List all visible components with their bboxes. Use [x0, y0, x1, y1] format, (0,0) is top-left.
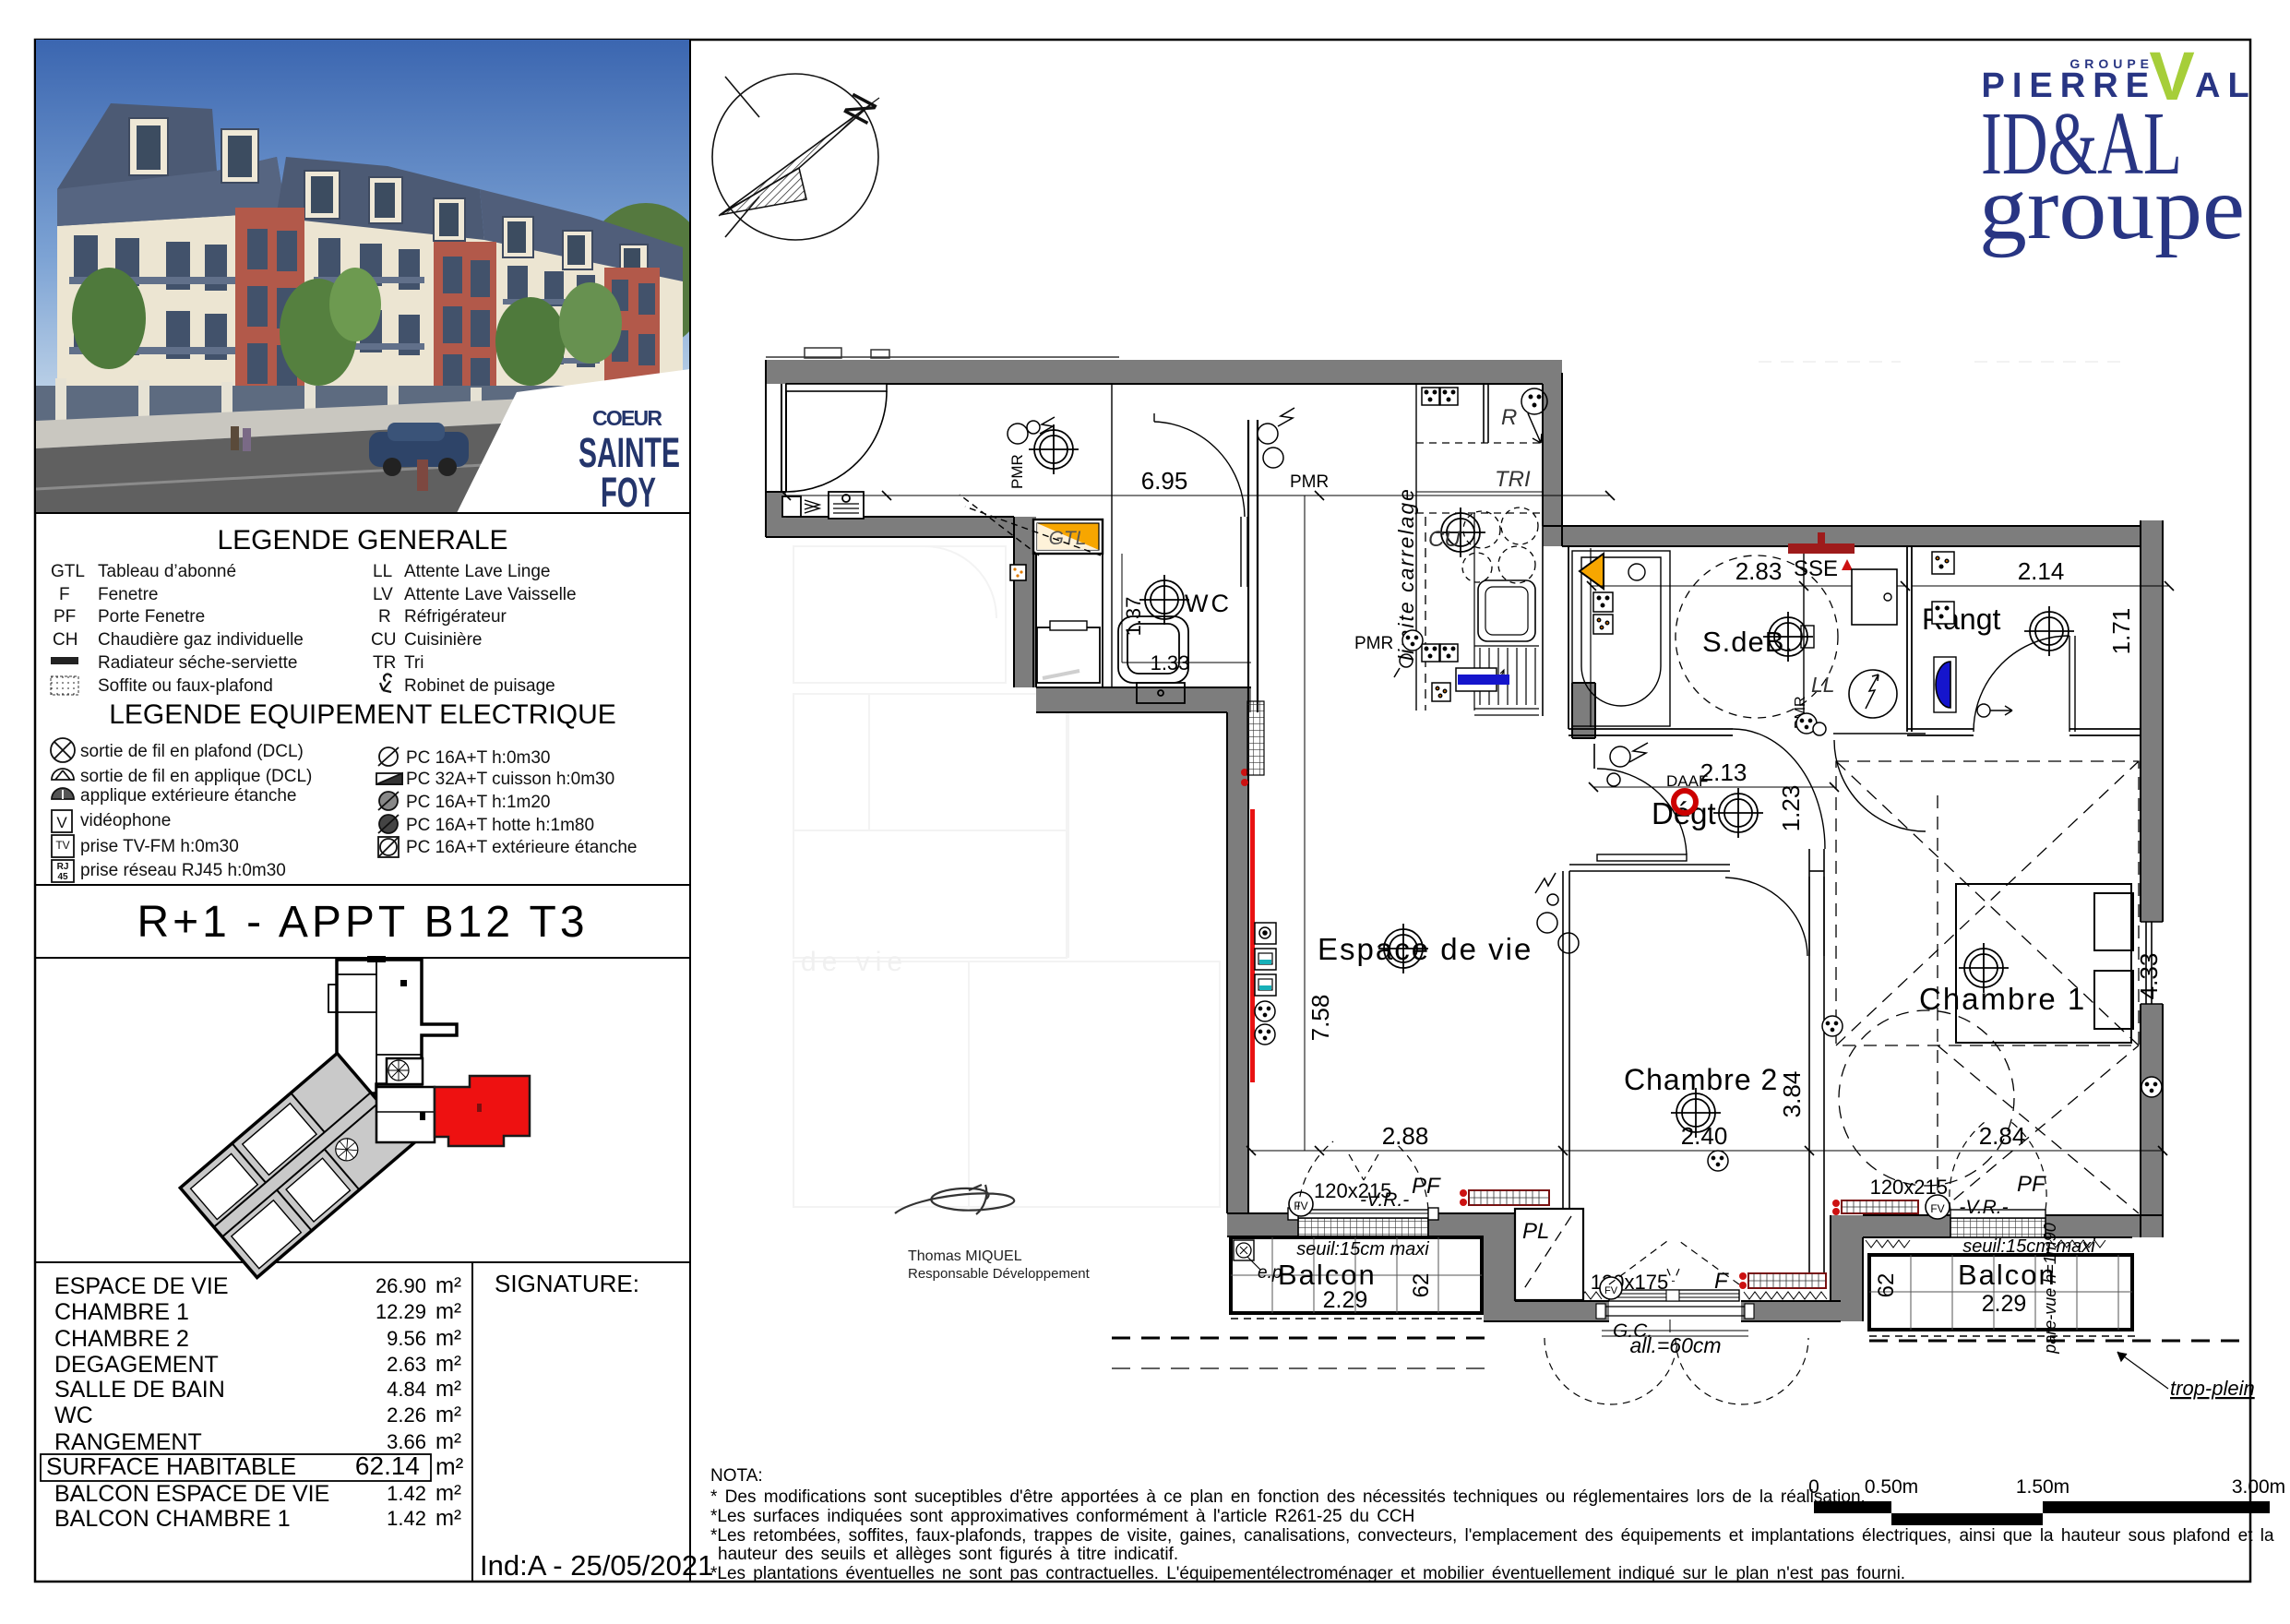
svg-text:prise réseau RJ45 h:0m30: prise réseau RJ45 h:0m30: [80, 861, 286, 880]
svg-text:2.88: 2.88: [1382, 1122, 1429, 1150]
svg-text:0: 0: [1808, 1476, 1819, 1498]
svg-text:3.66: 3.66: [387, 1430, 426, 1453]
svg-text:PF: PF: [2017, 1172, 2046, 1197]
svg-text:*Les retombées, soffites, faux: *Les retombées, soffites, faux-plafonds,…: [710, 1526, 2274, 1546]
svg-text:de vie: de vie: [801, 947, 908, 977]
svg-text:45: 45: [57, 872, 68, 882]
svg-text:seuil:15cm maxi: seuil:15cm maxi: [1296, 1239, 1429, 1260]
svg-text:PC 16A+T h:0m30: PC 16A+T h:0m30: [406, 748, 551, 768]
svg-text:12.29: 12.29: [376, 1300, 426, 1323]
svg-text:CHAMBRE 2: CHAMBRE 2: [54, 1326, 189, 1352]
svg-text:m²: m²: [435, 1299, 461, 1324]
svg-text:BALCON CHAMBRE 1: BALCON CHAMBRE 1: [54, 1506, 291, 1532]
svg-text:PC 32A+T cuisson h:0m30: PC 32A+T cuisson h:0m30: [406, 770, 614, 789]
svg-text:NOTA:: NOTA:: [710, 1466, 763, 1486]
svg-text:PL: PL: [1522, 1219, 1549, 1244]
svg-text:*Les plantations éventuelles n: *Les plantations éventuelles ne sont pas…: [710, 1564, 1905, 1583]
svg-text:FV: FV: [1294, 1200, 1307, 1212]
svg-text:2.29: 2.29: [1982, 1291, 2027, 1317]
svg-text:Tri: Tri: [404, 653, 423, 673]
svg-text:1.37: 1.37: [1122, 597, 1145, 637]
svg-text:COEUR: COEUR: [592, 406, 668, 430]
svg-text:LEGENDE GENERALE: LEGENDE GENERALE: [217, 525, 507, 555]
svg-text:62: 62: [1409, 1273, 1434, 1298]
svg-text:TR: TR: [373, 653, 396, 673]
svg-text:WC: WC: [54, 1403, 93, 1428]
svg-text:LL: LL: [1811, 673, 1835, 697]
svg-text:4.84: 4.84: [387, 1378, 426, 1401]
svg-text:m²: m²: [435, 1403, 461, 1427]
svg-text:LV: LV: [373, 585, 393, 604]
svg-text:RJ: RJ: [57, 862, 69, 872]
svg-text:CHAMBRE 1: CHAMBRE 1: [54, 1299, 189, 1325]
svg-text:WC: WC: [1185, 590, 1232, 617]
svg-text:1.42: 1.42: [387, 1507, 426, 1530]
svg-text:SIGNATURE:: SIGNATURE:: [495, 1270, 639, 1297]
svg-text:PC 16A+T extérieure étanche: PC 16A+T extérieure étanche: [406, 838, 638, 857]
svg-text:GTL: GTL: [51, 562, 85, 581]
svg-text:PMR: PMR: [1354, 634, 1393, 653]
svg-text:TRI: TRI: [1495, 467, 1531, 492]
svg-text:seuil:15cm maxi: seuil:15cm maxi: [1962, 1236, 2095, 1257]
svg-text:m²: m²: [435, 1273, 461, 1298]
svg-text:F: F: [1714, 1269, 1729, 1294]
svg-text:62: 62: [1874, 1273, 1899, 1298]
svg-text:7.58: 7.58: [1306, 995, 1334, 1042]
svg-text:applique extérieure étanche: applique extérieure étanche: [80, 786, 297, 806]
svg-text:Chambre 2: Chambre 2: [1624, 1063, 1778, 1096]
svg-text:DEGAGEMENT: DEGAGEMENT: [54, 1352, 219, 1378]
svg-text:LEGENDE EQUIPEMENT ELECTRIQUE: LEGENDE EQUIPEMENT ELECTRIQUE: [109, 699, 616, 730]
svg-text:R: R: [1501, 405, 1517, 430]
svg-text:FOY: FOY: [601, 469, 656, 516]
svg-text:m²: m²: [435, 1326, 461, 1351]
svg-text:Ind:A - 25/05/2021: Ind:A - 25/05/2021: [480, 1549, 713, 1582]
svg-text:Réfrigérateur: Réfrigérateur: [404, 607, 507, 627]
svg-text:sortie de fil en plafond: sortie de fil en plafond (DCL): [80, 742, 304, 761]
svg-text:Soffite ou faux-plafond: Soffite ou faux-plafond: [98, 676, 273, 696]
svg-text:R: R: [378, 607, 391, 627]
svg-text:3.00m: 3.00m: [2232, 1476, 2285, 1498]
svg-text:-V.R.-: -V.R.-: [1959, 1197, 2008, 1218]
svg-text:CH: CH: [53, 630, 78, 650]
svg-text:PMR: PMR: [1008, 454, 1026, 489]
svg-text:26.90: 26.90: [376, 1274, 426, 1297]
svg-text:1.50m: 1.50m: [2016, 1476, 2069, 1498]
svg-text:all.=60cm: all.=60cm: [1629, 1333, 1721, 1357]
svg-text:hauteur des seuils et allèges: hauteur des seuils et allèges sont figur…: [718, 1545, 1178, 1564]
svg-text:*Les surfaces indiquées sont a: *Les surfaces indiquées sont approximati…: [710, 1507, 1414, 1526]
svg-text:2.26: 2.26: [387, 1403, 426, 1427]
svg-text:groupe: groupe: [1979, 159, 2245, 257]
svg-text:Chaudière gaz individuelle: Chaudière gaz individuelle: [98, 630, 304, 650]
svg-text:m²: m²: [435, 1481, 461, 1506]
svg-text:-V.R.-: -V.R.-: [1360, 1189, 1409, 1211]
svg-text:PC 16A+T hotte h:1m80: PC 16A+T hotte h:1m80: [406, 816, 594, 835]
svg-text:9.56: 9.56: [387, 1327, 426, 1350]
svg-text:LL: LL: [373, 562, 392, 581]
svg-text:F: F: [59, 585, 70, 604]
svg-text:Porte Fenetre: Porte Fenetre: [98, 607, 205, 627]
svg-text:* Des modifications sont suce: * Des modifications sont suceptibles d'ê…: [710, 1487, 1866, 1507]
svg-text:Robinet de puisage: Robinet de puisage: [404, 676, 555, 696]
svg-text:Balcon: Balcon: [1278, 1259, 1377, 1291]
svg-text:Responsable Développement: Responsable Développement: [908, 1266, 1091, 1282]
svg-text:BALCON ESPACE DE VIE: BALCON ESPACE DE VIE: [54, 1481, 329, 1507]
svg-text:m²: m²: [435, 1429, 461, 1454]
svg-text:PC 16A+T h:1m20: PC 16A+T h:1m20: [406, 793, 551, 812]
svg-text:SSE: SSE: [1794, 556, 1838, 581]
svg-text:V: V: [56, 814, 67, 831]
svg-text:1.71: 1.71: [2107, 608, 2135, 655]
svg-text:2.13: 2.13: [1700, 758, 1747, 786]
svg-text:Radiateur séche-serviette: Radiateur séche-serviette: [98, 653, 298, 673]
svg-text:2.40: 2.40: [1681, 1122, 1728, 1150]
svg-text:FV: FV: [1604, 1285, 1618, 1296]
svg-text:ESPACE DE VIE: ESPACE DE VIE: [54, 1273, 229, 1299]
svg-text:Attente Lave Linge: Attente Lave Linge: [404, 562, 550, 581]
svg-text:1.23: 1.23: [1777, 785, 1805, 832]
svg-text:1.42: 1.42: [387, 1482, 426, 1505]
svg-text:2.14: 2.14: [2018, 557, 2065, 585]
svg-text:Attente Lave Vaisselle: Attente Lave Vaisselle: [404, 585, 577, 604]
svg-text:S.deB.: S.deB.: [1702, 626, 1794, 658]
svg-text:3.84: 3.84: [1778, 1071, 1806, 1118]
svg-text:Cuisinière: Cuisinière: [404, 630, 482, 650]
svg-text:2.84: 2.84: [1979, 1122, 2026, 1150]
svg-text:SURFACE HABITABLE: SURFACE HABITABLE: [46, 1452, 296, 1480]
svg-text:4.33: 4.33: [2135, 953, 2163, 1000]
svg-text:trop-plein: trop-plein: [2170, 1377, 2255, 1400]
svg-text:vidéophone: vidéophone: [80, 811, 171, 830]
svg-text:m²: m²: [435, 1352, 461, 1377]
svg-text:pare-vue h=1m90: pare-vue h=1m90: [2041, 1223, 2059, 1355]
svg-text:TV: TV: [55, 839, 69, 852]
svg-text:CU: CU: [371, 630, 396, 650]
svg-text:m²: m²: [435, 1506, 461, 1531]
svg-text:2.63: 2.63: [387, 1353, 426, 1376]
svg-text:FV: FV: [1930, 1202, 1944, 1215]
svg-text:2.29: 2.29: [1323, 1287, 1368, 1313]
svg-text:AL: AL: [2195, 66, 2257, 105]
svg-text:6.95: 6.95: [1141, 467, 1188, 495]
svg-text:0.50m: 0.50m: [1865, 1476, 1918, 1498]
svg-text:Fenetre: Fenetre: [98, 585, 158, 604]
svg-text:RANGEMENT: RANGEMENT: [54, 1429, 202, 1455]
svg-text:m²: m²: [435, 1452, 464, 1480]
svg-text:Tableau d’abonné: Tableau d’abonné: [98, 562, 236, 581]
svg-text:2.83: 2.83: [1735, 557, 1783, 585]
svg-text:sortie de fil en applique: sortie de fil en applique (DCL): [80, 767, 312, 786]
svg-text:Thomas MIQUEL: Thomas MIQUEL: [908, 1248, 1022, 1264]
svg-text:prise TV-FM h:0m30: prise TV-FM h:0m30: [80, 837, 239, 856]
svg-text:PF: PF: [54, 607, 76, 627]
svg-text:62.14: 62.14: [355, 1451, 420, 1480]
svg-text:m²: m²: [435, 1377, 461, 1402]
svg-text:PMR: PMR: [1290, 472, 1329, 492]
svg-text:CU: CU: [1428, 527, 1461, 552]
svg-text:R+1 - APPT B12 T3: R+1 - APPT B12 T3: [137, 898, 588, 947]
svg-text:SALLE DE BAIN: SALLE DE BAIN: [54, 1377, 225, 1403]
svg-text:Chambre 1: Chambre 1: [1919, 982, 2086, 1016]
